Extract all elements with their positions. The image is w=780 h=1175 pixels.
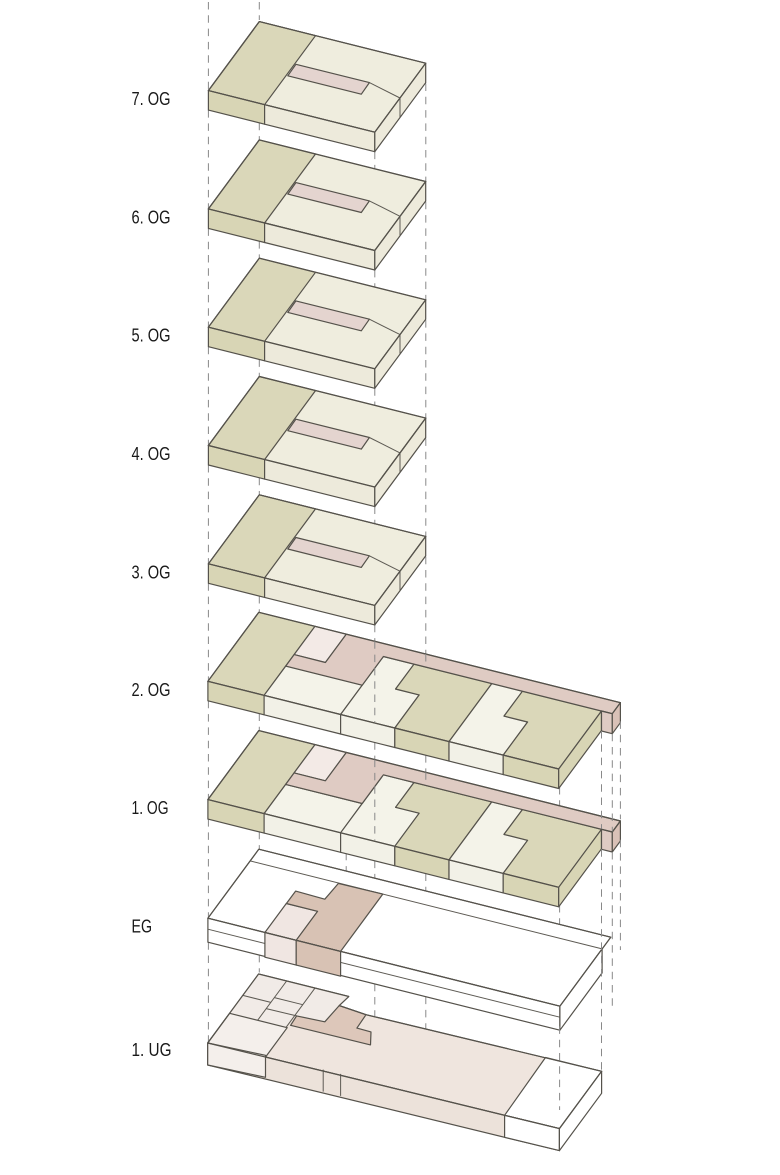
svg-text:1. UG: 1. UG: [132, 1040, 172, 1060]
svg-text:EG: EG: [132, 917, 153, 937]
svg-text:6. OG: 6. OG: [132, 207, 171, 227]
svg-text:4. OG: 4. OG: [132, 444, 171, 464]
svg-text:5. OG: 5. OG: [132, 326, 171, 346]
svg-text:2. OG: 2. OG: [132, 680, 171, 700]
svg-text:1. OG: 1. OG: [132, 798, 169, 818]
svg-text:3. OG: 3. OG: [132, 562, 171, 582]
svg-text:7. OG: 7. OG: [132, 89, 171, 109]
